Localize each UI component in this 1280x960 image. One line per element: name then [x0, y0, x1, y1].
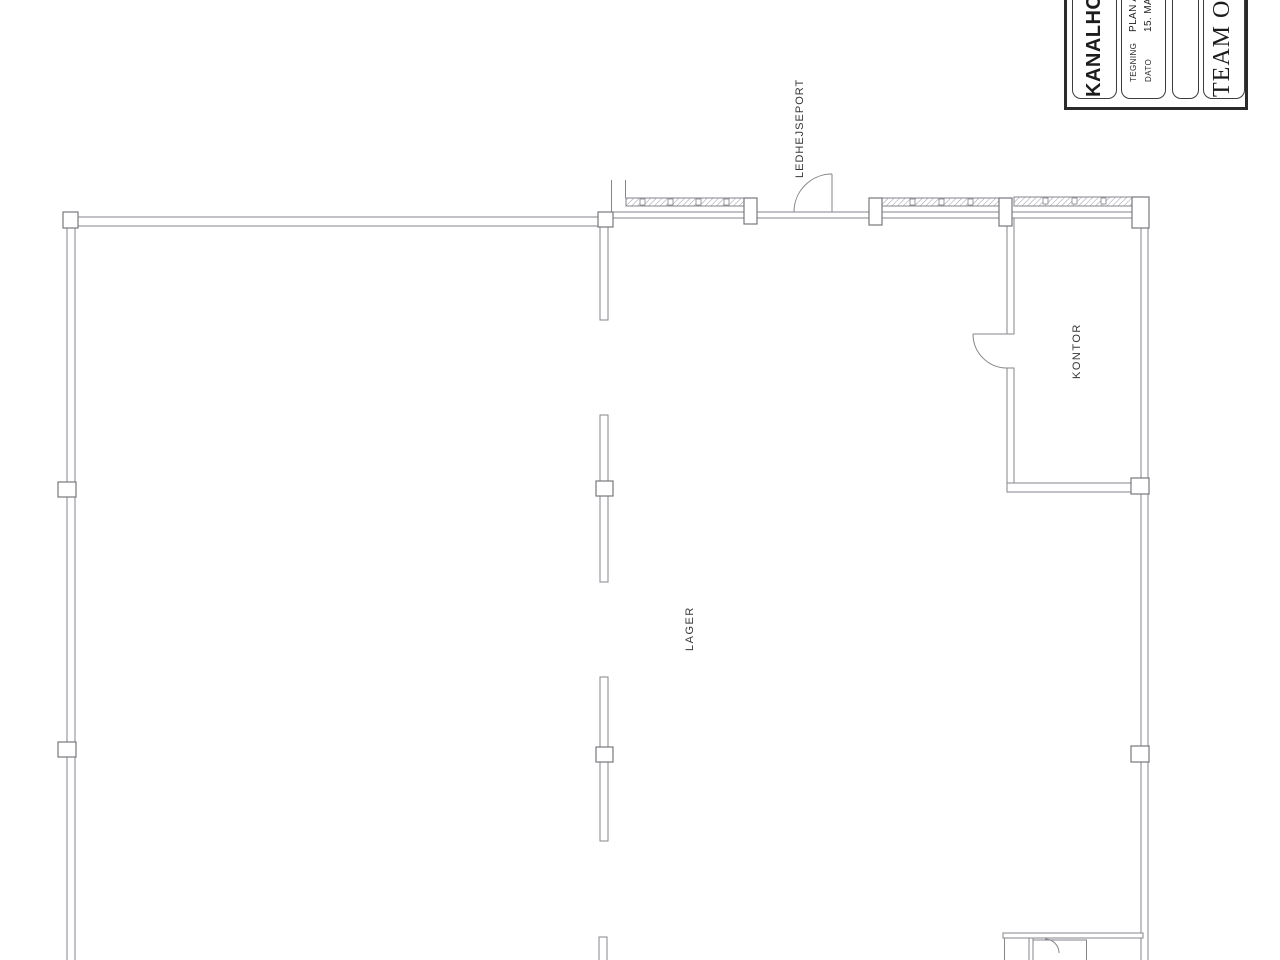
br-room-top-wall — [1003, 933, 1143, 938]
window-mullion — [968, 199, 973, 205]
window-mullion — [1101, 198, 1106, 204]
br-room-door-arc — [1045, 939, 1059, 953]
exterior-walls — [67, 212, 1148, 960]
top-wall-left — [70, 217, 607, 226]
column-right-2 — [1131, 746, 1149, 762]
column-top-left — [63, 212, 78, 228]
interior-walls — [599, 218, 1143, 960]
title-block-fields: TEGNINGPLAN A DATO15. MAJ — [1126, 0, 1156, 82]
room-label-kontor: KONTOR — [1071, 323, 1083, 379]
floor-plan-canvas — [0, 0, 1280, 960]
column-mid-top — [598, 212, 613, 227]
ledhejseport-door-arc — [794, 174, 832, 212]
window-mullion — [724, 199, 729, 205]
column-left-1 — [58, 482, 76, 497]
field-label-tegning: TEGNING — [1126, 32, 1141, 82]
kontor-left-wall-lower — [1007, 368, 1014, 492]
right-wall — [1141, 225, 1148, 960]
window-mullion — [1072, 198, 1077, 204]
window-mullion — [910, 199, 915, 205]
interior-wall-a — [600, 227, 608, 320]
column-top-right — [1132, 197, 1149, 228]
br-room-partition-1 — [1029, 938, 1033, 960]
column-facade-2 — [869, 198, 882, 225]
column-left-2 — [58, 742, 76, 757]
kontor-door-arc — [973, 334, 1007, 368]
column-facade-3 — [999, 198, 1012, 226]
window-mullion — [696, 199, 701, 205]
field-label-dato: DATO — [1141, 32, 1156, 82]
kontor-bottom-wall — [1007, 483, 1133, 492]
interior-wall-b — [600, 415, 608, 582]
interior-wall-d — [599, 937, 607, 960]
field-value-tegning: PLAN A — [1128, 0, 1139, 32]
column-kontor-br — [1131, 478, 1149, 494]
window-mullion — [1043, 198, 1048, 204]
window-mullion — [668, 199, 673, 205]
window-mullion — [640, 199, 645, 205]
window-mullion — [939, 199, 944, 205]
annotation-ledhejseport: LEDHEJSEPORT — [794, 79, 806, 178]
column-mid-2 — [596, 747, 613, 762]
column-facade-1 — [744, 198, 757, 224]
facade-jog-lines — [612, 180, 626, 215]
title-block-field-row: TEGNINGPLAN A — [1126, 0, 1141, 82]
column-mid-1 — [596, 481, 613, 496]
field-value-dato: 15. MAJ — [1143, 0, 1154, 32]
kontor-left-wall-upper — [1007, 218, 1014, 334]
room-label-lager: LAGER — [684, 606, 696, 651]
left-wall — [67, 219, 75, 960]
doors — [794, 174, 1059, 953]
title-block-panel-empty — [1172, 0, 1199, 99]
title-block-field-row: DATO15. MAJ — [1141, 0, 1156, 82]
title-block-company: TEAM OPT — [1209, 0, 1236, 97]
title-block-project-title: KANALHOLM — [1083, 0, 1106, 97]
